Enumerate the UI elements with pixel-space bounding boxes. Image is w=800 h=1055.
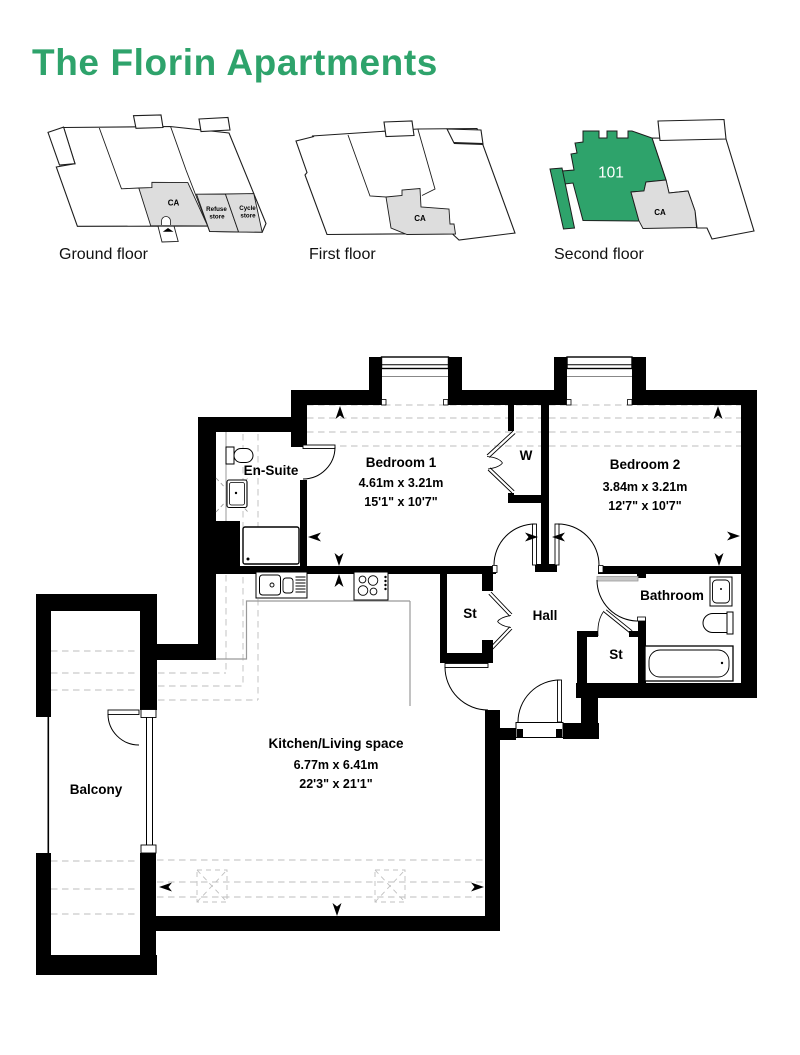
svg-text:W: W (520, 448, 533, 463)
svg-text:Bedroom 2: Bedroom 2 (610, 457, 681, 472)
svg-text:101: 101 (598, 165, 624, 182)
svg-text:15'1" x 10'7": 15'1" x 10'7" (364, 495, 437, 509)
svg-text:Bedroom 1: Bedroom 1 (366, 455, 437, 470)
svg-text:Hall: Hall (533, 608, 558, 623)
svg-text:Bathroom: Bathroom (640, 588, 704, 603)
svg-text:store: store (240, 213, 256, 220)
svg-text:CA: CA (414, 214, 426, 223)
svg-text:Kitchen/Living space: Kitchen/Living space (268, 736, 404, 751)
svg-text:En-Suite: En-Suite (244, 463, 299, 478)
svg-text:First floor: First floor (309, 246, 376, 263)
svg-text:St: St (609, 647, 623, 662)
svg-text:Ground floor: Ground floor (59, 246, 149, 263)
svg-text:Refuse: Refuse (206, 206, 227, 213)
svg-text:CA: CA (654, 208, 666, 217)
svg-text:6.77m x 6.41m: 6.77m x 6.41m (294, 758, 379, 772)
svg-text:The Florin Apartments: The Florin Apartments (32, 42, 438, 83)
svg-text:CA: CA (168, 199, 180, 208)
svg-text:St: St (463, 606, 477, 621)
svg-text:Cycle: Cycle (239, 205, 256, 212)
svg-text:store: store (209, 214, 225, 221)
svg-text:Balcony: Balcony (70, 782, 123, 797)
svg-text:4.61m x 3.21m: 4.61m x 3.21m (359, 476, 444, 490)
svg-text:3.84m x 3.21m: 3.84m x 3.21m (603, 480, 688, 494)
svg-text:12'7" x 10'7": 12'7" x 10'7" (608, 499, 681, 513)
svg-text:Second floor: Second floor (554, 246, 645, 263)
svg-text:22'3" x 21'1": 22'3" x 21'1" (299, 777, 372, 791)
